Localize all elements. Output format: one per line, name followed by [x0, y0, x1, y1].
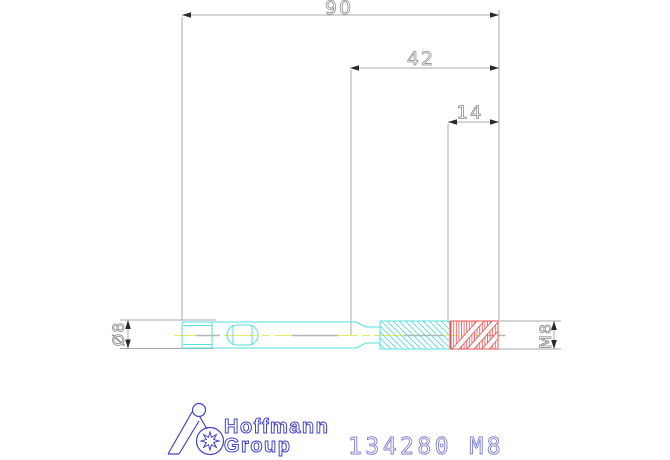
flute-section-hatch: [380, 321, 450, 349]
arrow-icon: [182, 12, 191, 18]
dimension-lines: [120, 10, 561, 349]
tap-drawing-svg: 90 42 14 Ø8 M8: [0, 0, 670, 460]
arrow-icon: [350, 65, 359, 71]
dimension-arrows: [125, 12, 557, 349]
hoffmann-logo-text: Hoffmann Group: [224, 416, 329, 457]
label-overall-length: 90: [325, 0, 353, 19]
arrow-icon: [490, 65, 499, 71]
logo-star-icon: [201, 432, 219, 450]
logo-figure: [168, 412, 207, 454]
label-thread-length: 14: [457, 103, 484, 124]
technical-drawing-page: 90 42 14 Ø8 M8: [0, 0, 670, 460]
logo-line2: Group: [224, 435, 292, 457]
hoffmann-logo: Hoffmann Group: [168, 404, 329, 458]
part-number: 134280 M8: [348, 434, 504, 460]
label-shank-diameter: Ø8: [109, 322, 128, 347]
arrow-icon: [490, 12, 499, 18]
label-thread-designation: M8: [536, 323, 555, 349]
hoffmann-logo-mark-icon: [168, 404, 224, 455]
dimension-labels: 90 42 14 Ø8 M8: [109, 0, 555, 349]
arrow-icon: [490, 119, 499, 125]
label-flute-length: 42: [407, 48, 435, 70]
